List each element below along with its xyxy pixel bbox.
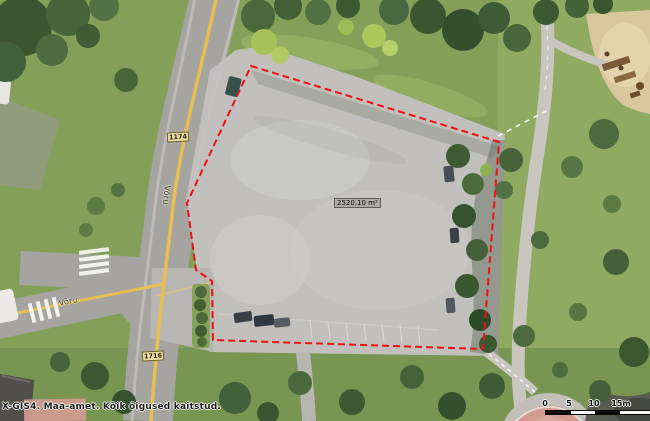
scale-bar: 0 5 10 15m (537, 399, 650, 417)
copyright-attribution: X-GIS4. Maa-amet. Kõik õigused kaitstud. (2, 402, 221, 412)
scale-bar-segments (545, 410, 650, 415)
scale-segment (595, 411, 620, 414)
scale-tick-label-0: 0 (542, 399, 548, 408)
hedge-row (192, 284, 210, 348)
area-measurement-label: 2520.10 m² (334, 198, 381, 208)
map-viewport[interactable]: 2520.10 m² Võru Võru 1174 1716 X-GIS4. M… (0, 0, 650, 421)
road-number-badge-2: 1716 (142, 350, 165, 361)
scale-tick-label-5: 5 (566, 399, 572, 408)
scale-tick-label-10: 10 (588, 399, 599, 408)
scale-segment (546, 411, 571, 414)
aerial-imagery (0, 0, 650, 421)
scale-segment (571, 411, 596, 414)
road-number-badge-1: 1174 (167, 131, 190, 142)
scale-tick-label-15m: 15m (611, 399, 630, 408)
scale-segment (620, 411, 650, 414)
